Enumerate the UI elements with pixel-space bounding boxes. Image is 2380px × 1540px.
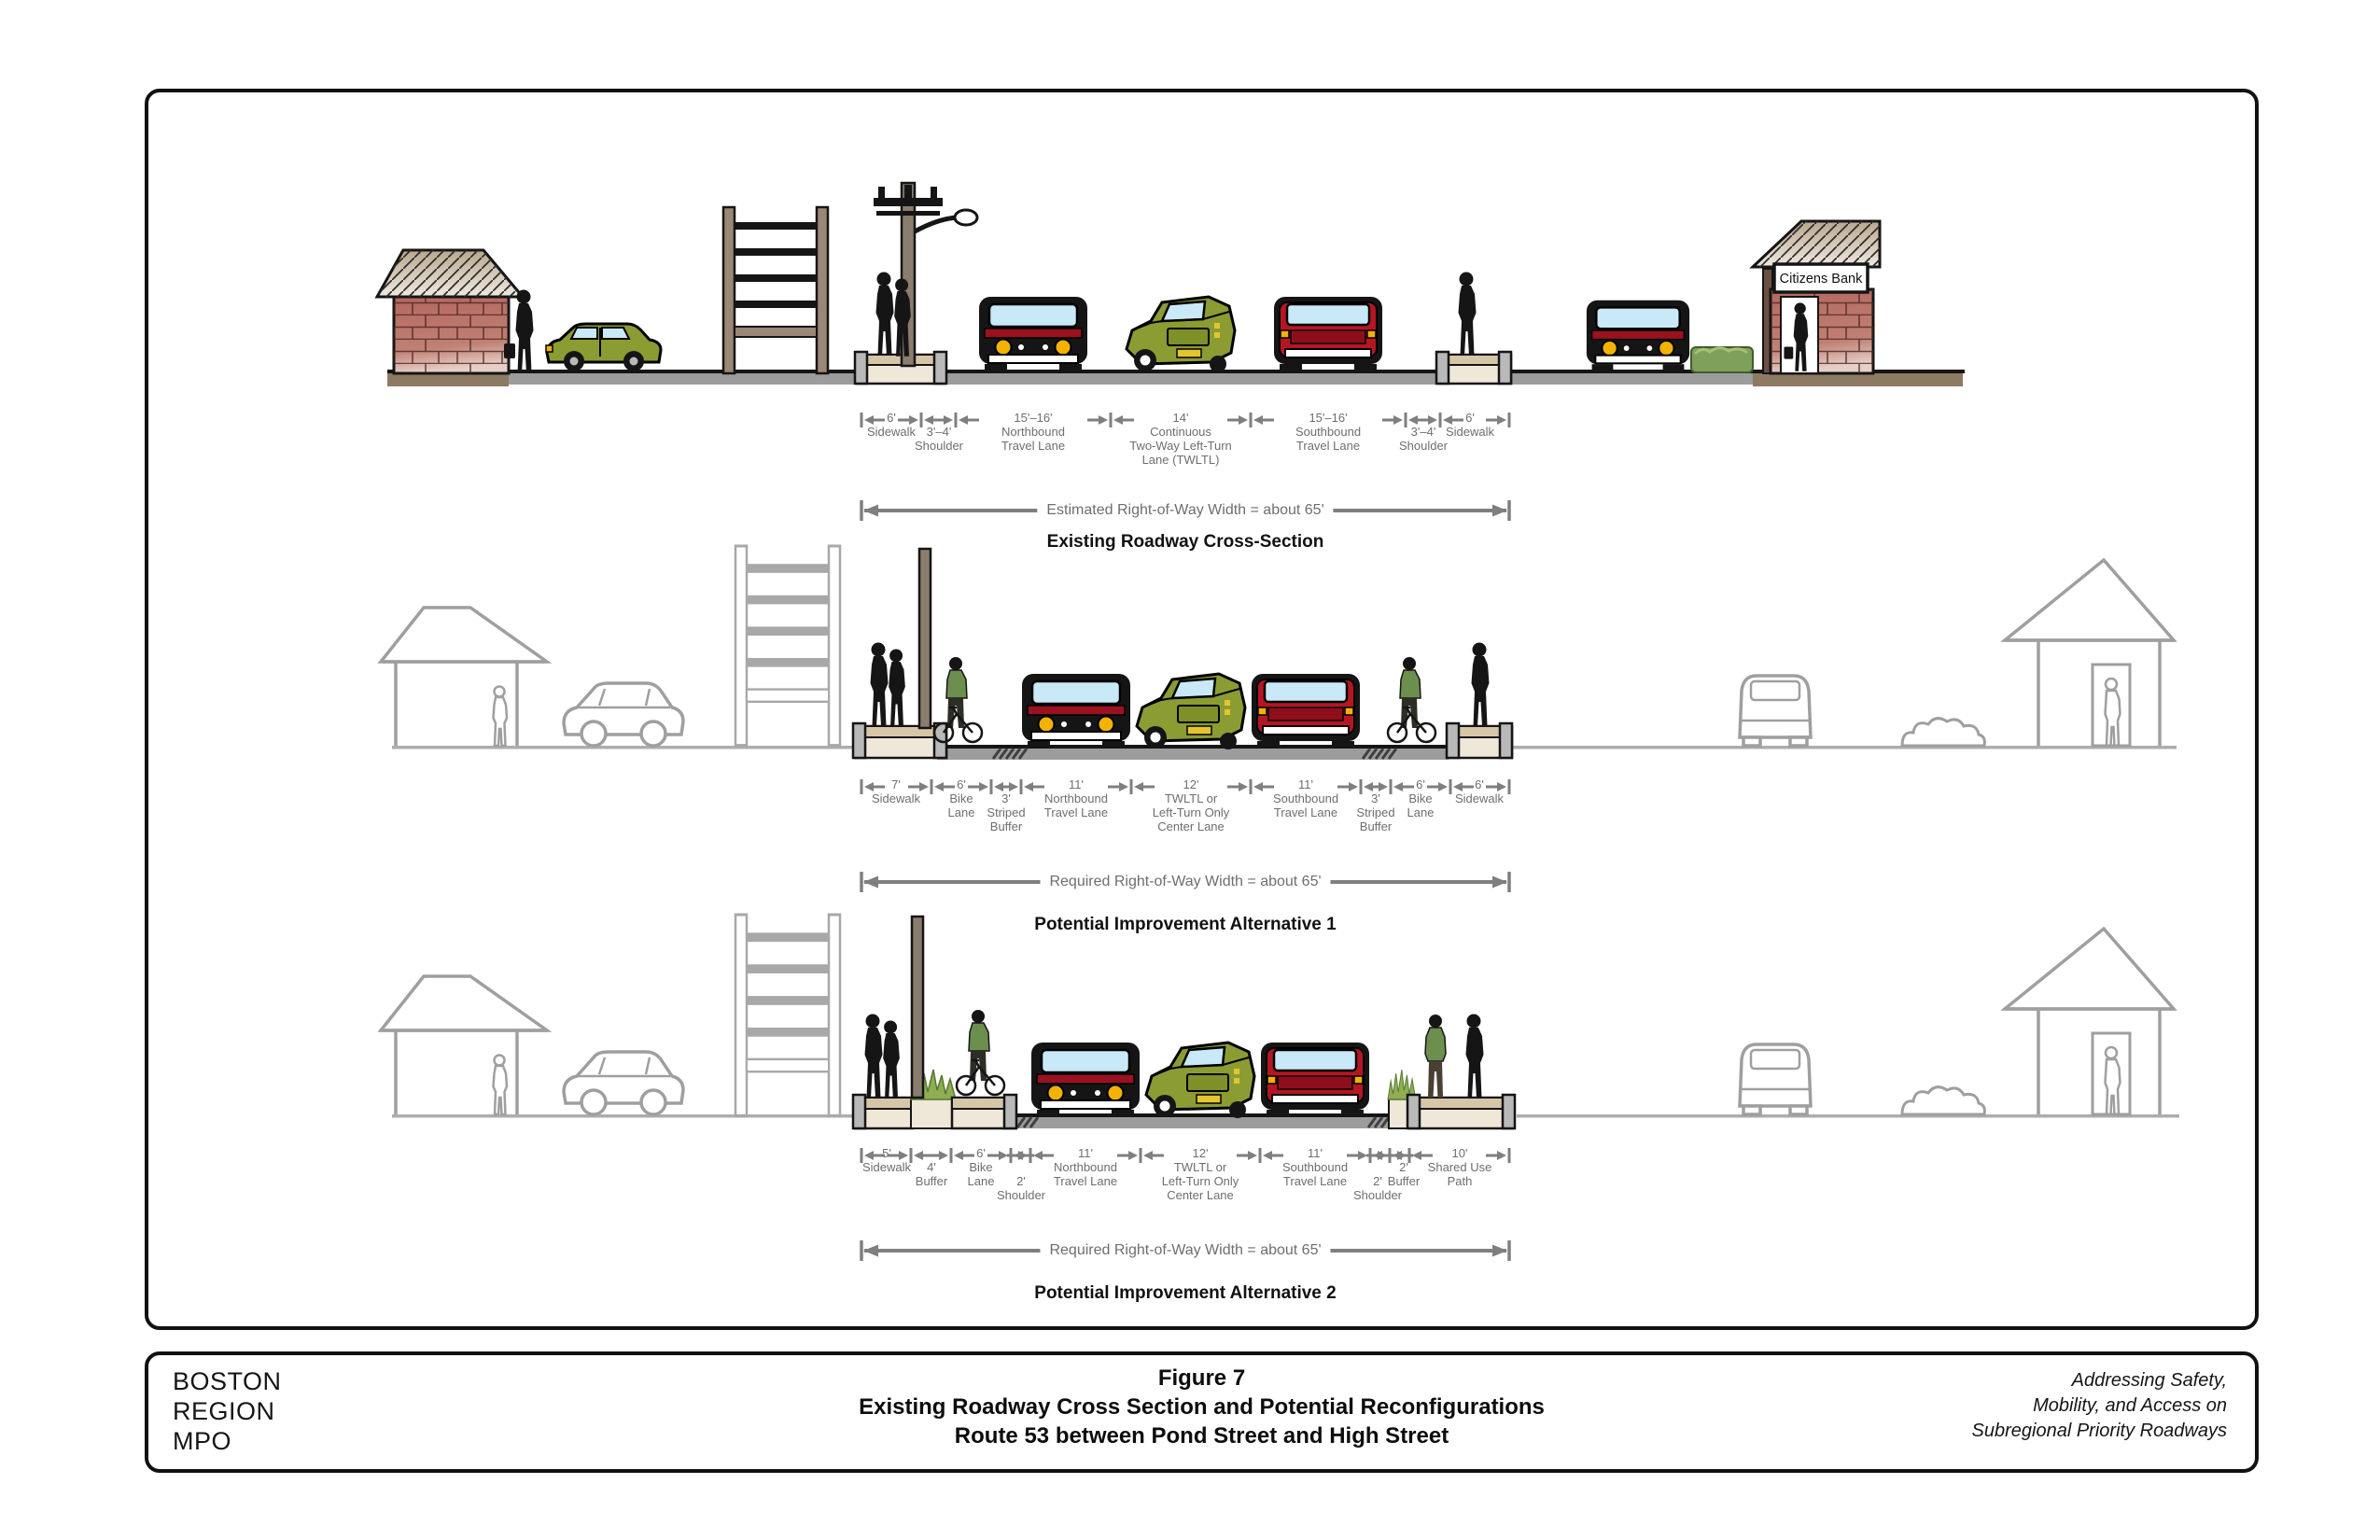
- pedestrian-icon: [1459, 273, 1477, 357]
- ground-line: [392, 1114, 859, 1118]
- car-outline: [1740, 1044, 1811, 1114]
- dimension-strip-alt1: [861, 779, 1509, 892]
- bank-building: Citizens Bank: [1753, 221, 1880, 373]
- pedestrians-icon: [865, 1015, 900, 1099]
- pedestrian-icon: [1466, 1015, 1484, 1099]
- utility-pole-icon: [912, 917, 923, 1098]
- bush-outline: [1902, 1087, 1984, 1114]
- northbound-car: [979, 297, 1087, 371]
- ground-line: [1517, 1114, 2179, 1118]
- raised-sidewalk-left: [853, 723, 946, 758]
- cyclist-icon: [957, 1010, 1004, 1095]
- scene-alt2: [381, 915, 2179, 1128]
- cyclist-icon: [1388, 657, 1435, 742]
- shared-use-path: [1407, 1095, 1515, 1128]
- billboard-frame-outline: [735, 915, 840, 1115]
- raised-bike-lane: [952, 1095, 1016, 1128]
- figure-page: BOSTON REGION MPO Figure 7 Existing Road…: [0, 0, 2380, 1540]
- house-outline: [2005, 929, 2174, 1114]
- ground-line: [1512, 746, 2177, 749]
- billboard-frame: [723, 207, 828, 373]
- raised-sidewalk-left: [853, 1095, 913, 1128]
- house-outline: [381, 976, 547, 1114]
- scene-existing: Citizens Bank: [377, 183, 1965, 386]
- ground-left: [387, 373, 509, 386]
- southbound-car: [1252, 674, 1360, 749]
- ground-line: [392, 746, 859, 749]
- dimension-strip-existing: [861, 413, 1509, 521]
- house-outline: [381, 608, 547, 746]
- house-outline: [2005, 560, 2174, 746]
- raised-sidewalk-right: [1436, 352, 1511, 384]
- turning-car: [1137, 674, 1245, 749]
- turning-car: [1146, 1043, 1254, 1118]
- road-surface: [509, 373, 1753, 385]
- car-outline: [564, 1052, 683, 1114]
- raised-sidewalk-right: [1447, 723, 1512, 758]
- utility-pole-icon: [919, 549, 931, 728]
- car-outline: [564, 683, 683, 746]
- northbound-car: [1022, 674, 1130, 749]
- southbound-car: [1274, 297, 1382, 371]
- road-edge: [937, 745, 1449, 749]
- cross-section-illustrations: Citizens Bank: [0, 0, 2380, 1540]
- ground-right: [1753, 373, 1963, 386]
- car-outline: [1740, 676, 1811, 746]
- road-edge: [1015, 1113, 1391, 1117]
- bush-outline: [1902, 719, 1984, 746]
- southbound-car: [1261, 1043, 1369, 1117]
- brick-building: [377, 250, 523, 373]
- green-car-side: [546, 324, 661, 371]
- northbound-car: [1031, 1043, 1140, 1117]
- bank-sign: Citizens Bank: [1780, 272, 1863, 287]
- scene-alt1: [381, 546, 2177, 760]
- parked-car: [1587, 301, 1689, 371]
- pedestrian-icon: [1425, 1015, 1446, 1098]
- road-surface: [1015, 1117, 1391, 1128]
- pedestrian-icon: [1472, 643, 1490, 727]
- turning-car: [1127, 297, 1235, 372]
- billboard-frame-outline: [735, 546, 840, 746]
- hedge-icon: [1691, 347, 1753, 372]
- dimension-strip-alt2: [861, 1148, 1509, 1261]
- pedestrians-icon: [871, 643, 905, 727]
- pedestrians-icon: [876, 273, 911, 357]
